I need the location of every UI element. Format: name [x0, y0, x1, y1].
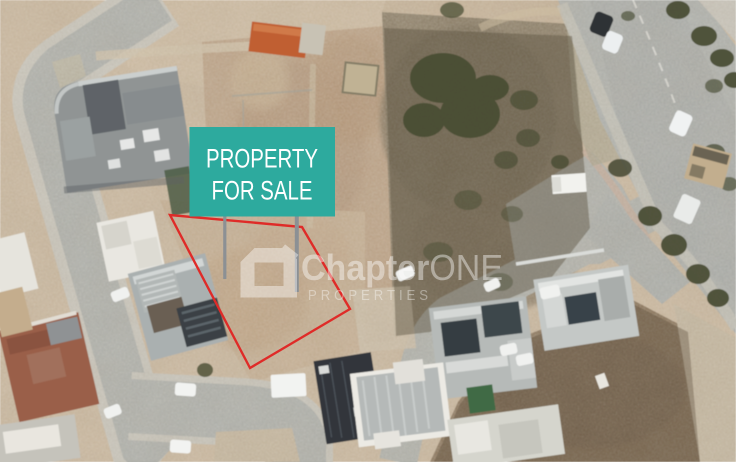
svg-text:PROPERTIES: PROPERTIES — [308, 287, 432, 304]
svg-text:FOR SALE: FOR SALE — [212, 176, 313, 206]
svg-text:PROPERTY: PROPERTY — [206, 144, 318, 174]
svg-text:ChapterONE: ChapterONE — [301, 247, 503, 288]
